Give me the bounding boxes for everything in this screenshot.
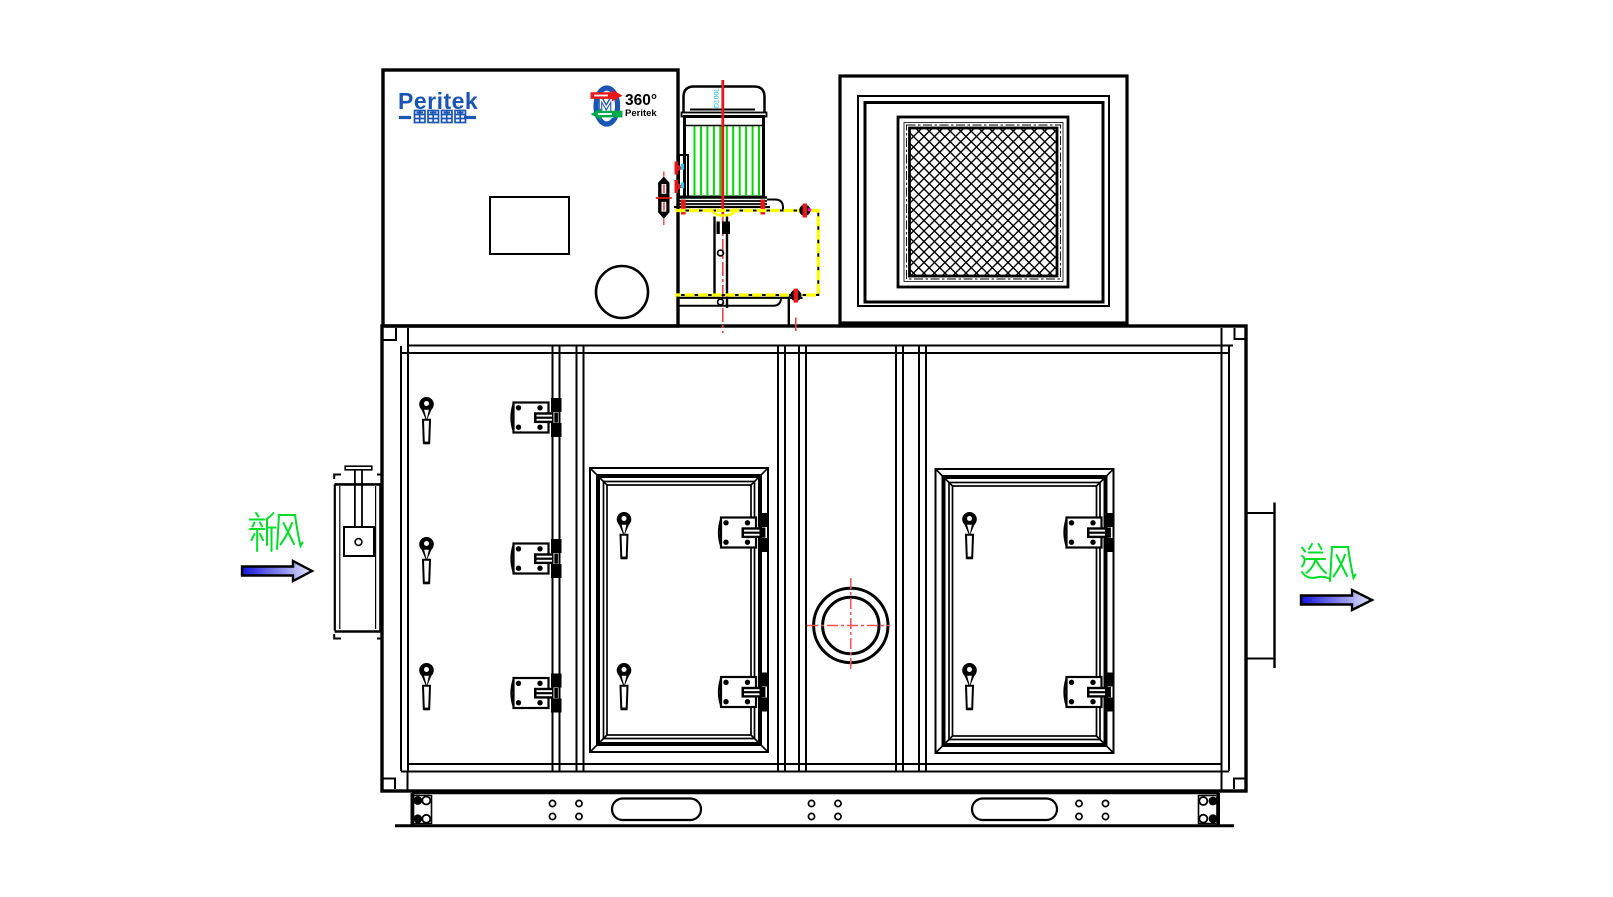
svg-text:360°: 360° — [625, 92, 657, 109]
svg-text:D100L: D100L — [714, 88, 721, 108]
svg-text:Peritek: Peritek — [625, 108, 657, 119]
